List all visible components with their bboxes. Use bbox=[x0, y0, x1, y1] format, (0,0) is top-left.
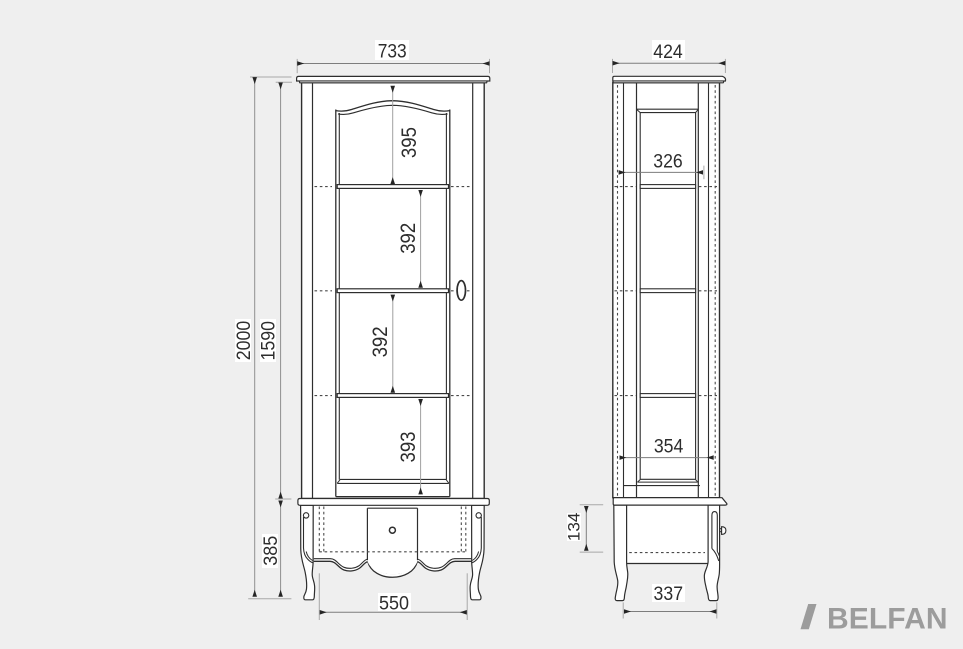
svg-text:393: 393 bbox=[396, 431, 420, 462]
svg-text:392: 392 bbox=[396, 223, 420, 254]
svg-text:326: 326 bbox=[653, 150, 683, 172]
svg-text:2000: 2000 bbox=[233, 321, 255, 361]
svg-text:BELFAN: BELFAN bbox=[827, 603, 948, 636]
svg-text:424: 424 bbox=[653, 41, 683, 63]
svg-text:354: 354 bbox=[654, 436, 684, 458]
svg-text:395: 395 bbox=[397, 127, 421, 158]
svg-text:1590: 1590 bbox=[258, 321, 280, 361]
svg-text:337: 337 bbox=[654, 583, 684, 605]
svg-text:134: 134 bbox=[566, 513, 584, 542]
svg-text:550: 550 bbox=[379, 593, 409, 615]
svg-text:733: 733 bbox=[378, 41, 407, 63]
svg-text:392: 392 bbox=[368, 326, 392, 357]
svg-text:385: 385 bbox=[260, 536, 282, 566]
